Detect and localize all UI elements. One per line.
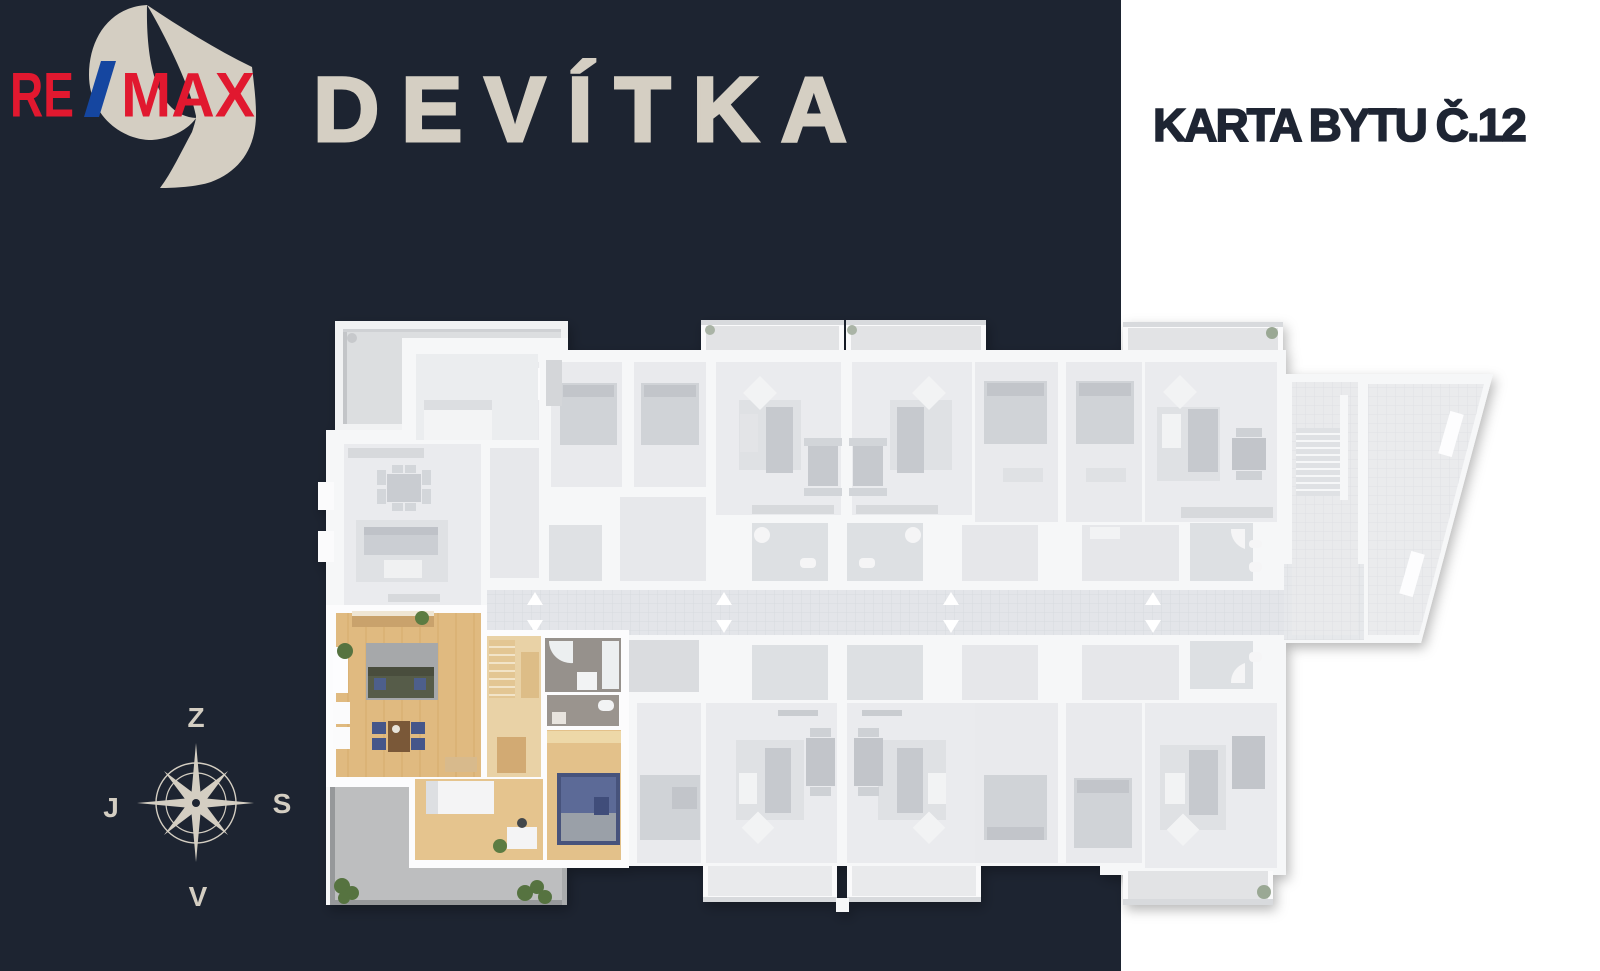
svg-text:RE: RE [10, 61, 74, 131]
svg-text:Z: Z [187, 702, 204, 733]
svg-text:DEVÍTKA: DEVÍTKA [313, 58, 869, 161]
svg-text:MAX: MAX [121, 61, 255, 131]
svg-text:V: V [189, 881, 208, 912]
svg-text:S: S [273, 788, 292, 819]
svg-text:KARTA BYTU Č.12: KARTA BYTU Č.12 [1153, 99, 1525, 151]
svg-text:J: J [103, 792, 119, 823]
